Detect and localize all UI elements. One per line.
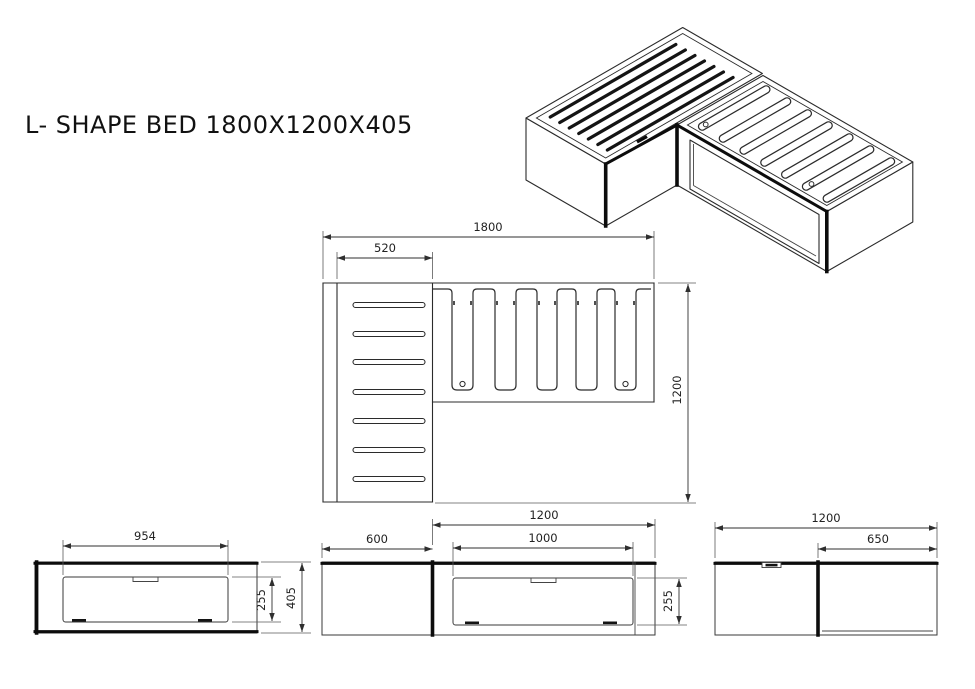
technical-drawing: L- SHAPE BED 1800X1200X405 <box>0 0 975 689</box>
elevation-left-drawer <box>63 577 228 622</box>
elevation-left-dim-height-label: 405 <box>284 587 298 609</box>
elevation-middle-drawer <box>453 578 633 625</box>
elevation-right-view: 1200 650 <box>715 511 937 635</box>
plan-view: 1800 520 1200 <box>323 220 696 503</box>
plan-dim-width: 1800 <box>323 220 654 279</box>
elevation-left-dim-drawer-height-label: 255 <box>254 589 268 611</box>
elevation-middle-dim-drawer-width-label: 1000 <box>528 531 557 545</box>
elevation-right-handle <box>762 563 781 568</box>
elevation-middle-dim-left-width: 600 <box>322 532 433 558</box>
plan-serpentine-ticks <box>454 301 634 305</box>
plan-dim-depth-label: 1200 <box>670 375 684 404</box>
plan-dim-width-label: 1800 <box>473 220 502 234</box>
elevation-middle-dim-left-width-label: 600 <box>366 532 388 546</box>
elevation-right-dim-right-width-label: 650 <box>867 532 889 546</box>
plan-dim-left-width-label: 520 <box>374 241 396 255</box>
plan-slat-hole <box>623 381 628 386</box>
elevation-left-view: 954 255 405 <box>35 529 311 633</box>
plan-slat-hole <box>460 381 465 386</box>
elevation-right-dim-width-label: 1200 <box>811 511 840 525</box>
elevation-middle-view: 1200 600 1000 255 <box>322 508 687 635</box>
plan-serpentine-slats <box>433 289 651 390</box>
drawing-sheet: L- SHAPE BED 1800X1200X405 <box>0 0 975 689</box>
plan-dim-depth: 1200 <box>435 283 696 503</box>
elevation-right-dim-width: 1200 <box>715 511 937 558</box>
iso-slat-hole <box>703 122 708 127</box>
elevation-right-dim-right-width: 650 <box>818 532 937 558</box>
elevation-middle-dim-drawer-height-label: 255 <box>661 590 675 612</box>
iso-slat-hole <box>809 182 814 187</box>
drawing-title: L- SHAPE BED 1800X1200X405 <box>25 111 413 139</box>
elevation-middle-dim-right-width-label: 1200 <box>529 508 558 522</box>
plan-left-column-slats <box>353 303 425 482</box>
elevation-left-dim-drawer-width-label: 954 <box>134 529 156 543</box>
plan-dim-left-width: 520 <box>337 241 433 279</box>
isometric-view <box>526 28 913 272</box>
